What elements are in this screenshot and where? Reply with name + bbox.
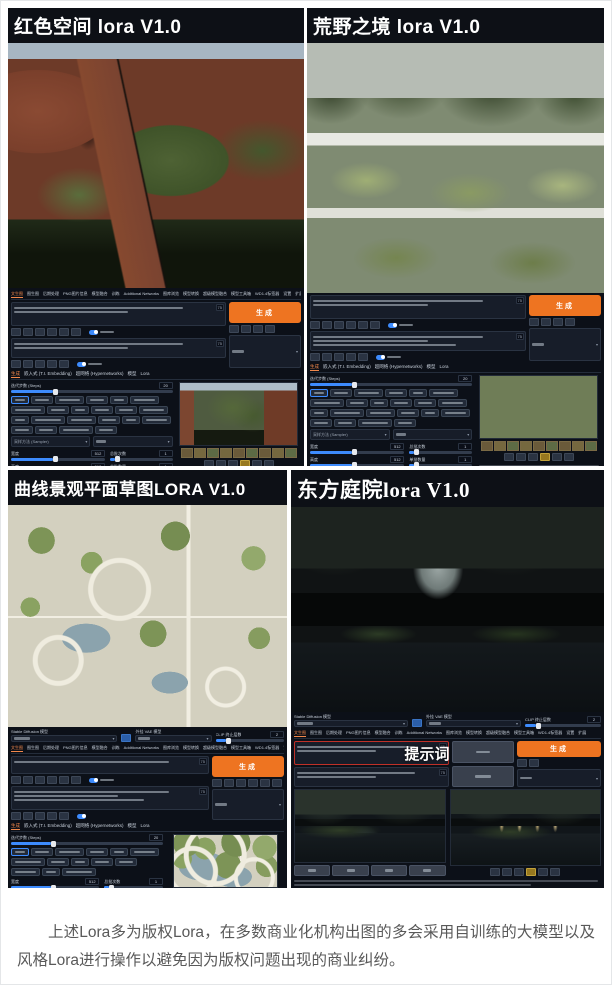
toolbar-icon-button[interactable] xyxy=(370,321,380,329)
gallery-thumbnail[interactable] xyxy=(507,441,519,451)
toolbar-icon-button[interactable] xyxy=(47,812,57,820)
style-dropdown[interactable]: ▾ xyxy=(212,789,284,820)
resolution-preset-chip[interactable] xyxy=(91,858,113,866)
prompt-textarea[interactable]: 75 xyxy=(11,302,226,326)
batch-count-value[interactable]: 1 xyxy=(458,443,472,450)
width-slider[interactable]: 宽度512 xyxy=(310,443,404,454)
generate-button[interactable]: 生成 xyxy=(229,302,301,323)
resolution-preset-chip[interactable] xyxy=(130,848,159,856)
toolbar-icon-button[interactable] xyxy=(23,328,33,336)
action-icon-button[interactable] xyxy=(538,868,548,876)
top-tab[interactable]: 模型融合 xyxy=(375,730,391,737)
gallery-thumbnail[interactable] xyxy=(194,448,206,458)
gallery-thumbnail[interactable] xyxy=(481,441,493,451)
tool-icon-button[interactable] xyxy=(248,779,258,787)
tool-icon-button[interactable] xyxy=(260,779,270,787)
size-batch-grid: 宽度512 总批次数1 高度512 单批数量1 xyxy=(11,878,163,888)
tool-icon-button[interactable] xyxy=(212,779,222,787)
resolution-preset-chip[interactable] xyxy=(334,419,356,427)
top-tab[interactable]: 训练 xyxy=(112,745,120,752)
gallery-thumbnail[interactable] xyxy=(259,448,271,458)
sub-tab[interactable]: Lora xyxy=(141,371,150,378)
top-tab[interactable]: 扩展 xyxy=(578,730,586,737)
top-tab[interactable]: 图库浏览 xyxy=(446,730,462,737)
vae-dropdown[interactable]: ▾ xyxy=(426,720,521,727)
chevron-down-icon: ▾ xyxy=(168,439,170,444)
style-dropdown[interactable]: ▾ xyxy=(529,328,601,361)
top-tab[interactable]: PNG图片信息 xyxy=(63,745,88,752)
toolbar-icon-button[interactable] xyxy=(334,353,344,361)
tool-icon-button[interactable] xyxy=(224,779,234,787)
toolbar-icon-button[interactable] xyxy=(358,321,368,329)
top-tab[interactable]: 模型工具箱 xyxy=(514,730,534,737)
slider-track[interactable] xyxy=(11,458,105,461)
top-tab[interactable]: 设置 xyxy=(566,730,574,737)
slider-track[interactable] xyxy=(11,842,163,845)
resolution-preset-chip[interactable] xyxy=(31,416,65,424)
resolution-preset-chip[interactable] xyxy=(47,406,69,414)
toolbar-icon-button[interactable] xyxy=(23,360,33,368)
top-tab[interactable]: 后期处理 xyxy=(43,291,59,298)
toolbar-icon-button[interactable] xyxy=(346,353,356,361)
top-tab[interactable]: Additional Networks xyxy=(124,291,159,298)
sub-tab[interactable]: 超网络 (Hypernetworks) xyxy=(76,371,124,378)
tool-icon-button[interactable] xyxy=(236,779,246,787)
caption-text-blur xyxy=(294,880,598,882)
action-icon-button[interactable] xyxy=(252,460,262,466)
toolbar-icon-button[interactable] xyxy=(358,353,368,361)
resolution-preset-chip[interactable] xyxy=(86,848,108,856)
gallery-thumbnail[interactable] xyxy=(494,441,506,451)
toolbar-icon-button[interactable] xyxy=(11,812,21,820)
top-tab[interactable]: 设置 xyxy=(283,291,291,298)
top-tab[interactable]: 后期处理 xyxy=(43,745,59,752)
top-tab[interactable]: WD1.4标签器 xyxy=(538,730,562,737)
resolution-preset-chip[interactable] xyxy=(98,416,120,424)
clip-slider[interactable] xyxy=(525,724,601,727)
slider-track[interactable] xyxy=(310,464,404,467)
text-blur-line xyxy=(14,307,183,310)
sub-tab[interactable]: 超网络 (Hypernetworks) xyxy=(375,364,423,371)
panel-title: 荒野之境 lora V1.0 xyxy=(307,8,604,43)
resolution-preset-chip[interactable] xyxy=(91,406,113,414)
top-tab[interactable]: 模型融合 xyxy=(92,291,108,298)
toolbar-icon-button[interactable] xyxy=(35,360,45,368)
top-tab[interactable]: Additional Networks xyxy=(407,730,442,737)
top-tab[interactable]: PNG图片信息 xyxy=(346,730,371,737)
top-tab[interactable]: 模型融合 xyxy=(92,745,108,752)
preview-image[interactable] xyxy=(479,375,598,439)
width-slider[interactable]: 宽度512 xyxy=(11,878,99,888)
action-icon-button[interactable] xyxy=(228,460,238,466)
toggle-switch[interactable] xyxy=(77,362,86,367)
button-label-blur xyxy=(423,869,431,872)
resolution-preset-chip[interactable] xyxy=(11,416,29,424)
height-slider[interactable]: 高度512 xyxy=(11,463,105,467)
gallery-thumbnail[interactable] xyxy=(533,441,545,451)
top-tab[interactable]: 扩展 xyxy=(295,291,301,298)
top-tab[interactable]: WD1.4标签器 xyxy=(255,291,279,298)
action-icon-button[interactable] xyxy=(240,460,250,466)
toolbar-icon-button[interactable] xyxy=(11,776,21,784)
image-action-button[interactable] xyxy=(332,865,368,876)
negative-prompt-textarea[interactable]: 75 xyxy=(11,786,209,810)
gallery-thumbnail[interactable] xyxy=(272,448,284,458)
clip-value[interactable]: 2 xyxy=(587,716,601,723)
resolution-preset-chip[interactable] xyxy=(429,389,458,397)
sub-tab[interactable]: Lora xyxy=(440,364,449,371)
slider-track[interactable] xyxy=(110,458,173,461)
resolution-preset-chip[interactable] xyxy=(310,419,332,427)
resolution-preset-chip[interactable] xyxy=(55,396,84,404)
prompt-textarea[interactable]: 75 xyxy=(11,756,209,774)
toolbar-icon-button[interactable] xyxy=(322,353,332,361)
batch-count-slider[interactable]: 总批次数1 xyxy=(110,450,173,461)
resolution-preset-chip[interactable] xyxy=(71,858,89,866)
showcase-image-courtyard xyxy=(291,507,604,712)
button-label-blur xyxy=(475,775,491,778)
resolution-preset-chip[interactable] xyxy=(59,426,93,434)
resolution-preset-chip[interactable] xyxy=(330,409,364,417)
toolbar-icon-button[interactable] xyxy=(47,360,57,368)
vae-dropdown[interactable]: ▾ xyxy=(135,735,211,742)
toolbar-icon-button[interactable] xyxy=(59,776,69,784)
batch-count-value[interactable]: 1 xyxy=(149,878,163,885)
slider-track[interactable] xyxy=(310,451,404,454)
resolution-preset-chip[interactable] xyxy=(55,848,84,856)
resolution-preset-chip[interactable] xyxy=(310,409,328,417)
button-label-blur xyxy=(385,869,393,872)
resolution-preset-chip[interactable] xyxy=(346,399,368,407)
action-icon-button[interactable] xyxy=(540,453,550,461)
style-dropdown[interactable]: ▾ xyxy=(517,769,601,787)
gallery-thumbnail[interactable] xyxy=(233,448,245,458)
preview-image[interactable] xyxy=(179,382,298,446)
resolution-preset-chip[interactable] xyxy=(62,868,96,876)
resolution-preset-chip[interactable] xyxy=(47,858,69,866)
resolution-preset-chip[interactable] xyxy=(409,389,427,397)
toolbar-icon-button[interactable] xyxy=(11,360,21,368)
sub-tab[interactable]: 模型 xyxy=(128,371,137,378)
steps-slider[interactable]: 迭代步数 (Steps)20 xyxy=(11,834,163,845)
tool-icon-button[interactable] xyxy=(517,759,527,767)
toolbar-icon-button[interactable] xyxy=(35,812,45,820)
resolution-preset-chip[interactable] xyxy=(11,406,45,414)
resolution-preset-chip[interactable] xyxy=(11,868,40,876)
top-tab[interactable]: 图库浏览 xyxy=(163,745,179,752)
sub-tab[interactable]: 生成 xyxy=(11,371,20,378)
top-tab[interactable]: 模型转换 xyxy=(466,730,482,737)
slider-track[interactable] xyxy=(310,383,472,386)
batch-size-value[interactable]: 1 xyxy=(159,463,173,467)
refresh-checkpoint-button[interactable] xyxy=(412,719,422,727)
slider-track[interactable] xyxy=(11,886,99,888)
top-tab[interactable]: WD1.4标签器 xyxy=(255,745,279,752)
batch-size-slider[interactable]: 单批数量1 xyxy=(409,456,472,467)
gallery-thumbnail[interactable] xyxy=(572,441,584,451)
action-icon-button[interactable] xyxy=(526,868,536,876)
steps-value[interactable]: 20 xyxy=(458,375,472,382)
gallery-thumbnail[interactable] xyxy=(246,448,258,458)
top-tab[interactable]: 文生图 xyxy=(294,730,306,737)
height-value[interactable]: 512 xyxy=(91,463,105,467)
prompt-textarea-highlighted[interactable]: 75 xyxy=(294,741,449,765)
clip-value[interactable]: 2 xyxy=(270,731,284,738)
sub-tab[interactable]: 嵌入式 (T.I. Embedding) xyxy=(24,371,72,378)
resolution-preset-chip[interactable] xyxy=(397,409,419,417)
resolution-preset-chip[interactable] xyxy=(394,419,416,427)
negative-prompt-textarea[interactable]: 75 xyxy=(294,767,449,787)
action-icon-button[interactable] xyxy=(216,460,226,466)
resolution-preset-chip[interactable] xyxy=(86,396,108,404)
action-icon-button[interactable] xyxy=(504,453,514,461)
width-value[interactable]: 512 xyxy=(390,443,404,450)
action-icon-button[interactable] xyxy=(516,453,526,461)
sampler-label: 采样方法 (Sampler) xyxy=(313,432,348,438)
preview-image[interactable] xyxy=(173,834,278,888)
resolution-preset-chip[interactable] xyxy=(110,396,128,404)
toolbar-icon-button[interactable] xyxy=(310,353,320,361)
top-tab[interactable]: Additional Networks xyxy=(124,745,159,752)
top-tab[interactable]: 模型转换 xyxy=(183,291,199,298)
gallery-strip xyxy=(481,441,597,451)
toggle-switch[interactable] xyxy=(388,323,397,328)
resolution-preset-chip[interactable] xyxy=(31,848,53,856)
image-action-button[interactable] xyxy=(371,865,407,876)
tool-icon-button[interactable] xyxy=(229,325,239,333)
tool-icon-button[interactable] xyxy=(553,318,563,326)
toggle-switch[interactable] xyxy=(89,330,98,335)
height-value[interactable]: 512 xyxy=(390,456,404,463)
generate-button[interactable]: 生成 xyxy=(529,295,601,316)
resolution-preset-chip[interactable] xyxy=(142,416,171,424)
top-tab[interactable]: 训练 xyxy=(395,730,403,737)
action-icon-button[interactable] xyxy=(552,453,562,461)
top-tab[interactable]: 模型转换 xyxy=(183,745,199,752)
tool-icon-button[interactable] xyxy=(529,318,539,326)
resolution-preset-chip[interactable] xyxy=(370,399,388,407)
steps-slider[interactable]: 迭代步数 (Steps)20 xyxy=(310,375,472,386)
width-value[interactable]: 512 xyxy=(91,450,105,457)
resolution-preset-chip[interactable] xyxy=(385,389,407,397)
top-tab[interactable]: 超级模型融合 xyxy=(486,730,510,737)
sub-tab[interactable]: Lora xyxy=(141,823,150,830)
action-icon-button[interactable] xyxy=(502,868,512,876)
tool-icon-button[interactable] xyxy=(541,318,551,326)
slider-track[interactable] xyxy=(409,451,472,454)
style-dropdown[interactable]: ▾ xyxy=(229,335,301,368)
resolution-preset-chip[interactable] xyxy=(310,399,344,407)
sub-tab[interactable]: 生成 xyxy=(310,364,319,371)
action-icon-button[interactable] xyxy=(550,868,560,876)
batch-count-slider[interactable]: 总批次数1 xyxy=(104,878,163,888)
gallery-thumbnail[interactable] xyxy=(285,448,297,458)
toolbar-icon-button[interactable] xyxy=(35,328,45,336)
tool-icon-button[interactable] xyxy=(529,759,539,767)
top-tab[interactable]: 后期处理 xyxy=(326,730,342,737)
resolution-preset-chip[interactable] xyxy=(358,419,392,427)
resolution-preset-chip[interactable] xyxy=(130,396,159,404)
prompt-textarea[interactable]: 75 xyxy=(310,295,526,319)
slider-track[interactable] xyxy=(409,464,472,467)
resolution-preset-chip[interactable] xyxy=(122,416,140,424)
resolution-preset-chip[interactable] xyxy=(42,868,60,876)
toggle-switch[interactable] xyxy=(376,355,385,360)
action-icon-button[interactable] xyxy=(490,868,500,876)
toolbar-icon-button[interactable] xyxy=(59,812,69,820)
accelerate-button[interactable] xyxy=(452,766,514,788)
resolution-preset-chip[interactable] xyxy=(67,416,96,424)
image-compare-area xyxy=(294,789,601,876)
top-tab[interactable]: 文生图 xyxy=(11,745,23,752)
toolbar-icon-button[interactable] xyxy=(334,321,344,329)
batch-size-slider[interactable]: 单批数量1 xyxy=(110,463,173,467)
resolution-preset-chip[interactable] xyxy=(441,409,470,417)
text-blur-line xyxy=(297,750,376,753)
generate-button[interactable]: 生成 xyxy=(212,756,284,777)
reference-image[interactable] xyxy=(294,789,446,863)
text-blur-line xyxy=(14,791,169,794)
top-tab[interactable]: 模型工具箱 xyxy=(231,291,251,298)
height-slider[interactable]: 高度512 xyxy=(310,456,404,467)
action-icon-button[interactable] xyxy=(564,453,574,461)
resolution-preset-chip[interactable] xyxy=(31,396,53,404)
toolbar-icon-button[interactable] xyxy=(346,321,356,329)
gallery-thumbnail[interactable] xyxy=(220,448,232,458)
toolbar-icon-button[interactable] xyxy=(310,321,320,329)
width-slider[interactable]: 宽度512 xyxy=(11,450,105,461)
toolbar-icon-button[interactable] xyxy=(71,328,81,336)
toolbar-icon-button[interactable] xyxy=(23,812,33,820)
top-tab[interactable]: 图生图 xyxy=(27,291,39,298)
resolution-preset-chip[interactable] xyxy=(11,426,33,434)
resolution-preset-chip[interactable] xyxy=(390,399,412,407)
scheduler-dropdown[interactable]: ▾ xyxy=(93,436,172,447)
toggle-switch[interactable] xyxy=(89,778,98,783)
checkpoint-dropdown[interactable]: ▾ xyxy=(294,720,408,727)
slider-track[interactable] xyxy=(104,886,163,888)
generate-column: 生成 ▾ xyxy=(517,741,601,787)
steps-slider[interactable]: 迭代步数 (Steps)20 xyxy=(11,382,173,393)
resolution-preset-chip[interactable] xyxy=(421,409,439,417)
resolution-preset-chip[interactable] xyxy=(115,406,137,414)
tool-icon-button[interactable] xyxy=(272,779,282,787)
sub-tab[interactable]: 嵌入式 (T.I. Embedding) xyxy=(323,364,371,371)
refresh-checkpoint-button[interactable] xyxy=(121,734,131,742)
sampler-dropdown[interactable]: 采样方法 (Sampler)▾ xyxy=(310,429,390,440)
tool-icon-button[interactable] xyxy=(241,325,251,333)
top-tab[interactable]: 文生图 xyxy=(11,291,23,298)
resolution-preset-chip[interactable] xyxy=(438,399,467,407)
top-tab[interactable]: 图生图 xyxy=(310,730,322,737)
generate-button[interactable]: 生成 xyxy=(517,741,601,757)
sub-tab[interactable]: 超网络 (Hypernetworks) xyxy=(76,823,124,830)
negative-prompt-textarea[interactable]: 75 xyxy=(310,331,526,351)
toolbar-icon-button[interactable] xyxy=(47,328,57,336)
sub-tab[interactable]: 嵌入式 (T.I. Embedding) xyxy=(24,823,72,830)
toolbar-icon-button[interactable] xyxy=(23,776,33,784)
gallery-thumbnail[interactable] xyxy=(559,441,571,451)
gallery-thumbnail[interactable] xyxy=(181,448,193,458)
batch-count-slider[interactable]: 总批次数1 xyxy=(409,443,472,454)
gallery-thumbnail[interactable] xyxy=(546,441,558,451)
toolbar-icon-button[interactable] xyxy=(35,776,45,784)
top-tab[interactable]: 图库浏览 xyxy=(163,291,179,298)
tool-icon-button[interactable] xyxy=(265,325,275,333)
toolbar-icon-button[interactable] xyxy=(11,328,21,336)
top-tab[interactable]: 超级模型融合 xyxy=(203,291,227,298)
image-action-button[interactable] xyxy=(409,865,445,876)
negative-toolbar xyxy=(11,360,226,368)
tool-icon-button[interactable] xyxy=(253,325,263,333)
resolution-preset-chip[interactable] xyxy=(310,389,328,397)
top-tab[interactable]: 图生图 xyxy=(27,745,39,752)
resolution-preset-chip[interactable] xyxy=(414,399,436,407)
toolbar-icon-button[interactable] xyxy=(59,328,69,336)
toggle-switch[interactable] xyxy=(77,814,86,819)
resolution-preset-chip[interactable] xyxy=(11,848,29,856)
sampler-dropdown[interactable]: 采样方法 (Sampler)▾ xyxy=(11,436,90,447)
top-tab[interactable]: 训练 xyxy=(112,291,120,298)
top-tab[interactable]: 模型工具箱 xyxy=(231,745,251,752)
batch-count-value[interactable]: 1 xyxy=(159,450,173,457)
tool-icon-button[interactable] xyxy=(565,318,575,326)
slider-track[interactable] xyxy=(11,390,173,393)
resolution-preset-chip[interactable] xyxy=(11,396,29,404)
resolution-preset-chip[interactable] xyxy=(354,389,383,397)
resolution-preset-chip[interactable] xyxy=(95,426,117,434)
checkpoint-dropdown[interactable]: ▾ xyxy=(11,735,117,742)
gallery-thumbnail[interactable] xyxy=(520,441,532,451)
toolbar-icon-button[interactable] xyxy=(59,360,69,368)
sub-tab[interactable]: 模型 xyxy=(128,823,137,830)
sub-tab[interactable]: 模型 xyxy=(427,364,436,371)
toggle-label-blur xyxy=(100,779,114,782)
image-action-button[interactable] xyxy=(294,865,330,876)
clip-slider[interactable] xyxy=(216,739,284,742)
width-value[interactable]: 512 xyxy=(85,878,99,885)
resolution-preset-chip[interactable] xyxy=(115,858,137,866)
action-icon-button[interactable] xyxy=(514,868,524,876)
toolbar-icon-button[interactable] xyxy=(71,776,81,784)
toolbar-icon-button[interactable] xyxy=(322,321,332,329)
action-icon-button[interactable] xyxy=(264,460,274,466)
gallery-thumbnail[interactable] xyxy=(585,441,597,451)
resolution-preset-chip[interactable] xyxy=(139,406,168,414)
accelerate-button[interactable] xyxy=(452,741,514,763)
scheduler-dropdown[interactable]: ▾ xyxy=(393,429,473,440)
sub-tab[interactable]: 生成 xyxy=(11,823,20,830)
toolbar-icon-button[interactable] xyxy=(47,776,57,784)
top-tab[interactable]: PNG图片信息 xyxy=(63,291,88,298)
steps-value[interactable]: 20 xyxy=(149,834,163,841)
resolution-preset-chip[interactable] xyxy=(71,406,89,414)
preview-image[interactable] xyxy=(450,789,602,866)
top-tab[interactable]: 设置 xyxy=(283,745,284,752)
resolution-preset-chip[interactable] xyxy=(330,389,352,397)
batch-size-value[interactable]: 1 xyxy=(458,456,472,463)
resolution-preset-chip[interactable] xyxy=(11,858,45,866)
action-icon-button[interactable] xyxy=(204,460,214,466)
top-tab[interactable]: 超级模型融合 xyxy=(203,745,227,752)
gallery-thumbnail[interactable] xyxy=(207,448,219,458)
negative-prompt-textarea[interactable]: 75 xyxy=(11,338,226,358)
resolution-preset-chip[interactable] xyxy=(366,409,395,417)
resolution-preset-chip[interactable] xyxy=(110,848,128,856)
resolution-preset-chip[interactable] xyxy=(35,426,57,434)
steps-value[interactable]: 20 xyxy=(159,382,173,389)
action-icon-button[interactable] xyxy=(528,453,538,461)
